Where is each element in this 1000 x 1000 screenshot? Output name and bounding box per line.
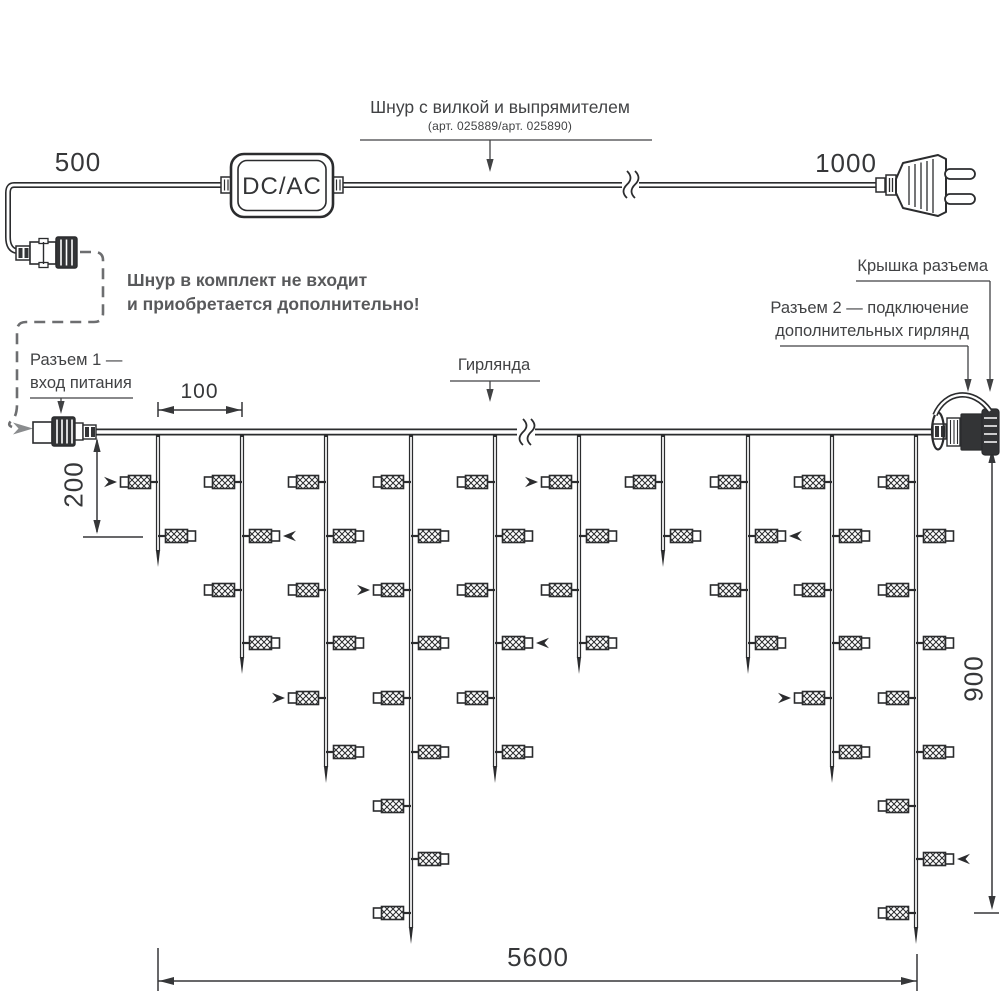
lamp-cap — [458, 585, 466, 595]
flash-arrow-icon — [525, 477, 538, 487]
lamp-cap — [795, 585, 803, 595]
lamp-icon — [634, 476, 656, 489]
lamp-icon — [924, 746, 946, 759]
lamp-cap — [626, 477, 634, 487]
lamp-cap — [862, 747, 870, 757]
lamp-cap — [289, 477, 297, 487]
dim-5600-label: 5600 — [478, 942, 598, 973]
lamp-icon — [840, 746, 862, 759]
drop-tip — [914, 927, 918, 944]
flash-arrow-icon — [778, 693, 791, 703]
lamp-icon — [887, 476, 909, 489]
lamp-icon — [587, 530, 609, 543]
lamp-icon — [213, 476, 235, 489]
lamp-cap — [205, 477, 213, 487]
lamp-cap — [879, 908, 887, 918]
drop-tip — [324, 766, 328, 783]
dimension-lines — [83, 402, 999, 991]
wire-break-icon — [517, 419, 535, 445]
drop-tip — [409, 927, 413, 944]
dim-1000-label: 1000 — [806, 148, 886, 179]
lamp-icon — [887, 692, 909, 705]
lamp-icon — [887, 907, 909, 920]
lamp-icon — [887, 800, 909, 813]
lamp-cap — [525, 638, 533, 648]
lamp-icon — [803, 692, 825, 705]
lamp-cap — [121, 477, 129, 487]
drop-tip — [156, 550, 160, 567]
lamp-cap — [525, 747, 533, 757]
power-plug-icon — [876, 155, 975, 216]
lamp-icon — [756, 530, 778, 543]
lamp-icon — [503, 746, 525, 759]
lamp-icon — [550, 584, 572, 597]
lamp-cap — [542, 477, 550, 487]
lamp-cap — [289, 693, 297, 703]
lamp-cap — [272, 638, 280, 648]
lamp-icon — [419, 637, 441, 650]
dim-100-label: 100 — [157, 380, 242, 404]
lamp-cap — [374, 801, 382, 811]
lamp-cap — [272, 531, 280, 541]
drop-tip — [661, 550, 665, 567]
lamp-cap — [441, 854, 449, 864]
lamp-cap — [356, 747, 364, 757]
lamp-icon — [382, 584, 404, 597]
garland-label: Гирлянда — [434, 354, 554, 377]
flash-arrow-icon — [536, 638, 549, 648]
connector2-label: Разъем 2 — подключение дополнительных ги… — [769, 297, 969, 343]
flash-arrow-icon — [283, 531, 296, 541]
lamp-cap — [205, 585, 213, 595]
lamp-icon — [466, 476, 488, 489]
lamp-cap — [879, 477, 887, 487]
lamp-icon — [550, 476, 572, 489]
lamp-icon — [887, 584, 909, 597]
lamp-icon — [503, 530, 525, 543]
power-cord — [8, 171, 877, 251]
lamp-icon — [466, 584, 488, 597]
lamp-icon — [503, 637, 525, 650]
lamp-icon — [166, 530, 188, 543]
lamp-cap — [879, 693, 887, 703]
lamp-cap — [711, 585, 719, 595]
lamp-cap — [441, 747, 449, 757]
lamp-icon — [297, 476, 319, 489]
lamp-cap — [609, 531, 617, 541]
cord-label: Шнур с вилкой и выпрямителем — [350, 97, 650, 118]
lamp-cap — [188, 531, 196, 541]
lamp-icon — [587, 637, 609, 650]
lamp-cap — [609, 638, 617, 648]
lamp-cap — [946, 638, 954, 648]
lamp-icon — [419, 530, 441, 543]
lamp-icon — [803, 476, 825, 489]
dim-100 — [158, 402, 242, 417]
lamp-cap — [374, 477, 382, 487]
flash-arrow-icon — [957, 854, 970, 864]
lamp-icon — [129, 476, 151, 489]
lamp-icon — [382, 476, 404, 489]
lamp-cap — [946, 531, 954, 541]
lamp-icon — [840, 530, 862, 543]
lamp-cap — [356, 638, 364, 648]
lamp-cap — [525, 531, 533, 541]
drop-tip — [830, 766, 834, 783]
lamp-cap — [778, 531, 786, 541]
note-line1: Шнур в комплект не входит — [127, 268, 420, 292]
not-included-note: Шнур в комплект не входит и приобретаетс… — [127, 268, 420, 316]
cord-break-icon — [622, 171, 639, 198]
note-line2: и приобретается дополнительно! — [127, 292, 420, 316]
drop-tip — [746, 657, 750, 674]
flash-arrow-icon — [104, 477, 117, 487]
lamp-cap — [374, 693, 382, 703]
lamp-cap — [441, 531, 449, 541]
lamp-icon — [466, 692, 488, 705]
cap-label: Крышка разъема — [788, 255, 988, 278]
drop-tip — [493, 766, 497, 783]
dim-500-label: 500 — [38, 147, 118, 178]
lamp-icon — [382, 800, 404, 813]
lamp-cap — [289, 585, 297, 595]
lamp-icon — [297, 584, 319, 597]
drop-tip — [577, 657, 581, 674]
flash-arrow-icon — [789, 531, 802, 541]
drop-tip — [240, 657, 244, 674]
lamp-icon — [924, 530, 946, 543]
lamp-cap — [795, 477, 803, 487]
flash-arrow-icon — [272, 693, 285, 703]
lamp-icon — [419, 746, 441, 759]
lamp-cap — [542, 585, 550, 595]
lamp-icon — [671, 530, 693, 543]
lamp-cap — [356, 531, 364, 541]
lamp-icon — [382, 692, 404, 705]
lamp-cap — [458, 477, 466, 487]
lamp-icon — [719, 476, 741, 489]
garland-drops — [104, 436, 970, 945]
lamp-cap — [441, 638, 449, 648]
lamp-icon — [297, 692, 319, 705]
lamp-cap — [374, 585, 382, 595]
lamp-cap — [862, 531, 870, 541]
connector1-label: Разъем 1 — вход питания — [30, 349, 132, 395]
cord-sublabel: (арт. 025889/арт. 025890) — [350, 119, 650, 133]
lamp-icon — [803, 584, 825, 597]
lamp-icon — [419, 853, 441, 866]
dim-200-label: 200 — [59, 455, 90, 515]
flash-arrow-icon — [357, 585, 370, 595]
lamp-icon — [924, 853, 946, 866]
lamp-cap — [862, 638, 870, 648]
lamp-cap — [458, 693, 466, 703]
lamp-icon — [213, 584, 235, 597]
lamp-cap — [374, 908, 382, 918]
lamp-icon — [924, 637, 946, 650]
lamp-cap — [795, 693, 803, 703]
lamp-icon — [840, 637, 862, 650]
gray-arrow-icon — [13, 423, 33, 435]
connector2-icon — [932, 395, 999, 455]
lamp-cap — [879, 585, 887, 595]
lamp-cap — [946, 747, 954, 757]
converter-label: DC/AC — [237, 173, 327, 201]
lamp-icon — [334, 746, 356, 759]
lamp-cap — [778, 638, 786, 648]
lamp-icon — [382, 907, 404, 920]
diagram-stage: 500 1000 Шнур с вилкой и выпрямителем (а… — [0, 0, 1000, 1000]
lamp-icon — [334, 530, 356, 543]
lamp-icon — [334, 637, 356, 650]
cord-connector-icon — [16, 237, 77, 268]
lamp-icon — [250, 637, 272, 650]
lamp-cap — [946, 854, 954, 864]
dashed-cord-path — [9, 252, 103, 435]
lamp-icon — [250, 530, 272, 543]
lamp-cap — [879, 801, 887, 811]
connector1-icon — [33, 417, 96, 446]
lamp-cap — [711, 477, 719, 487]
lamp-icon — [719, 584, 741, 597]
dim-900-label: 900 — [959, 649, 990, 709]
lamp-icon — [756, 637, 778, 650]
lamp-cap — [693, 531, 701, 541]
